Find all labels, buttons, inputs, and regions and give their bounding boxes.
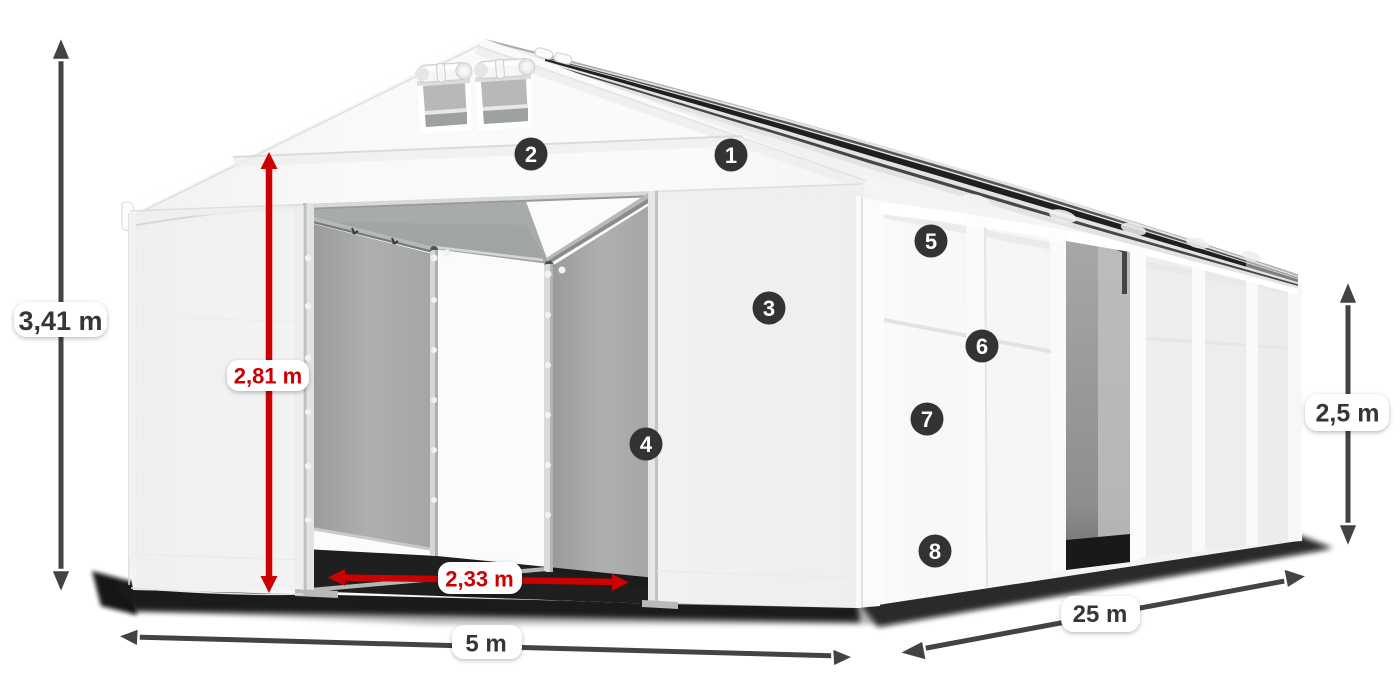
svg-text:2,81 m: 2,81 m [234,364,303,389]
svg-text:8: 8 [929,539,941,564]
svg-text:3,41 m: 3,41 m [18,306,102,336]
svg-text:2: 2 [525,142,537,167]
svg-text:2,5 m: 2,5 m [1316,400,1380,428]
svg-text:4: 4 [640,432,653,457]
svg-text:1: 1 [725,143,737,168]
svg-text:3: 3 [763,296,775,321]
svg-text:5 m: 5 m [465,631,506,658]
svg-text:25 m: 25 m [1073,601,1128,628]
svg-text:2,33 m: 2,33 m [445,567,514,592]
svg-text:7: 7 [921,407,933,432]
svg-text:5: 5 [925,229,937,254]
svg-text:6: 6 [976,334,988,359]
